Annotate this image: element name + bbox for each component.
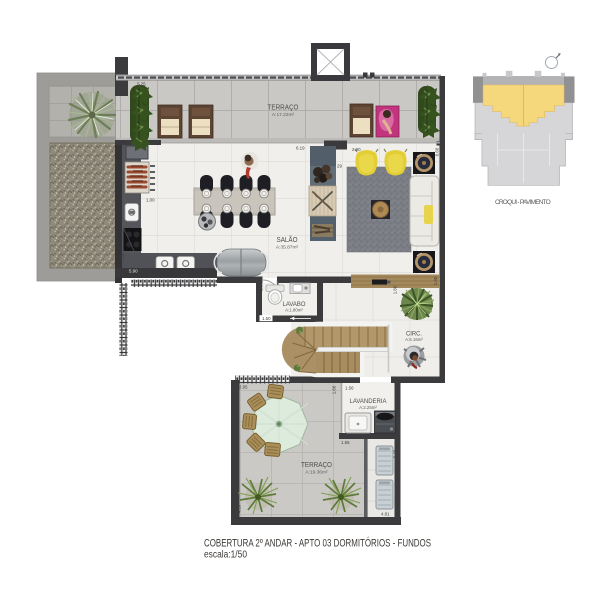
svg-text:TERRAÇO: TERRAÇO bbox=[301, 460, 332, 469]
svg-text:4.81: 4.81 bbox=[381, 512, 390, 517]
svg-text:2.95: 2.95 bbox=[239, 385, 248, 390]
svg-text:1.65: 1.65 bbox=[341, 440, 350, 445]
svg-text:1.00: 1.00 bbox=[146, 198, 155, 203]
svg-text:1.23: 1.23 bbox=[120, 253, 125, 262]
svg-text:A:19.36m²: A:19.36m² bbox=[305, 470, 328, 476]
svg-text:4.10: 4.10 bbox=[237, 504, 242, 513]
svg-text:COBERTURA 2º ANDAR - APTO 03: COBERTURA 2º ANDAR - APTO 03 DORMITÓRIOS… bbox=[204, 537, 431, 550]
svg-text:A:17.22m²: A:17.22m² bbox=[272, 112, 295, 118]
svg-text:1.80: 1.80 bbox=[393, 285, 398, 294]
svg-text:A:2.25m²: A:2.25m² bbox=[359, 405, 377, 410]
svg-text:0.48: 0.48 bbox=[393, 449, 398, 458]
svg-text:2.80: 2.80 bbox=[352, 147, 361, 152]
svg-text:A:6.16m²: A:6.16m² bbox=[405, 337, 423, 342]
svg-text:TERRAÇO: TERRAÇO bbox=[268, 103, 299, 112]
svg-text:1.50: 1.50 bbox=[262, 316, 271, 321]
svg-text:5.90: 5.90 bbox=[129, 269, 138, 274]
svg-text:1.56: 1.56 bbox=[345, 386, 354, 391]
svg-text:A:35.87m²: A:35.87m² bbox=[276, 245, 299, 251]
svg-text:29: 29 bbox=[337, 164, 342, 169]
svg-text:A:1.80m²: A:1.80m² bbox=[285, 308, 303, 313]
svg-text:escala:1/50: escala:1/50 bbox=[204, 550, 247, 561]
svg-text:1.66: 1.66 bbox=[332, 385, 337, 394]
svg-text:SALÃO: SALÃO bbox=[277, 235, 298, 244]
svg-text:CROQUI - PAVIMENTO: CROQUI - PAVIMENTO bbox=[495, 199, 551, 206]
svg-text:2.50: 2.50 bbox=[391, 376, 400, 381]
svg-text:1.90: 1.90 bbox=[317, 283, 322, 292]
svg-text:6.19: 6.19 bbox=[296, 146, 305, 151]
svg-text:1.20: 1.20 bbox=[259, 282, 264, 291]
svg-text:5.25: 5.25 bbox=[137, 82, 146, 87]
svg-text:1.90: 1.90 bbox=[433, 276, 438, 285]
svg-text:0.60: 0.60 bbox=[435, 147, 440, 156]
